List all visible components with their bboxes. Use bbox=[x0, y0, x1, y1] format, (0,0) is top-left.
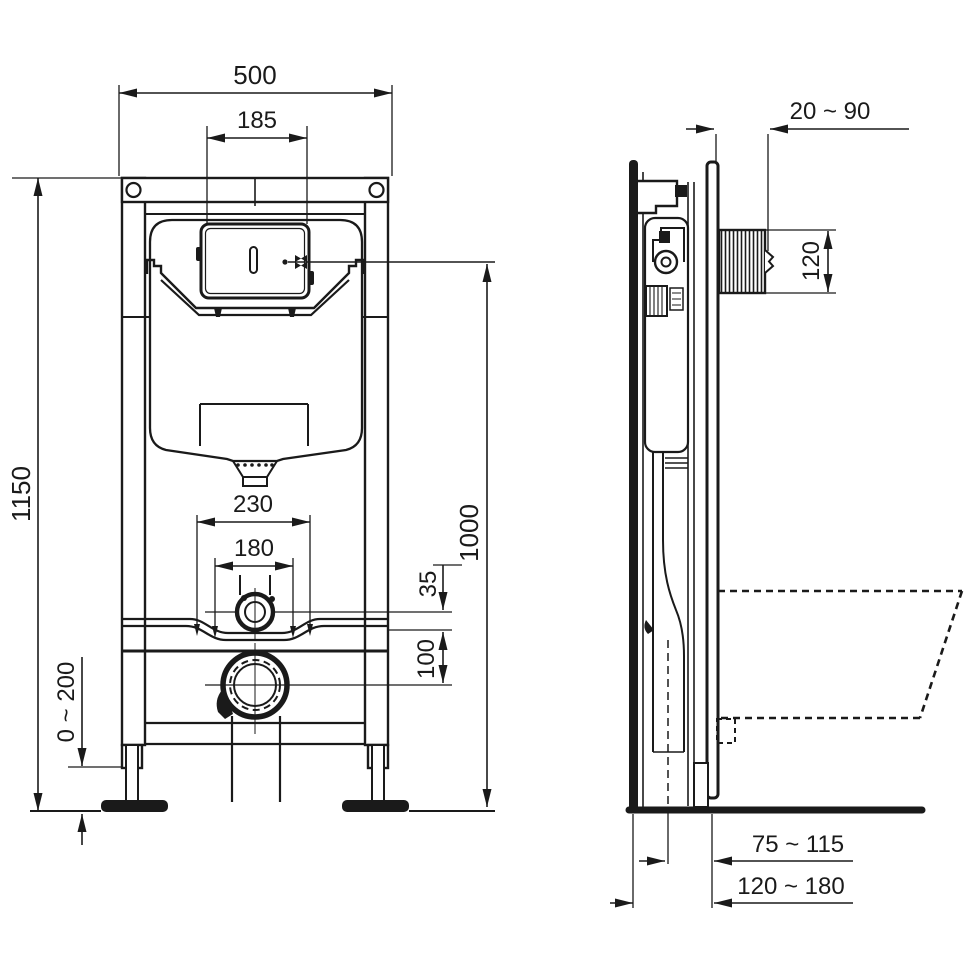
dim-label-120: 120 bbox=[798, 241, 825, 281]
dim-label-230: 230 bbox=[233, 491, 273, 518]
flush-plate-sleeve bbox=[719, 230, 773, 293]
dim-panel-height: 1000 bbox=[454, 264, 487, 807]
dim-recess-height: 120 bbox=[765, 230, 836, 293]
side-bracket-block bbox=[675, 185, 687, 197]
cistern-outlet-ribs bbox=[236, 463, 274, 467]
bowl-fixing-box bbox=[717, 719, 735, 743]
side-back-rail bbox=[629, 160, 638, 812]
flush-bend-assembly bbox=[123, 575, 452, 640]
dim-outlet-to-front: 75 ~ 115 bbox=[639, 831, 853, 861]
dim-label-100: 100 bbox=[413, 639, 440, 679]
dim-depth-range: 120 ~ 180 bbox=[610, 873, 853, 903]
dim-flush-plate-width: 185 bbox=[207, 107, 307, 224]
flush-box-right-tab bbox=[308, 271, 314, 285]
flush-bend-ear-right bbox=[269, 596, 275, 602]
dim-label-35: 35 bbox=[415, 571, 442, 598]
right-leg-tube bbox=[372, 745, 384, 802]
bowl-dashed-outline bbox=[718, 591, 962, 718]
dim-flush-offset: 35 bbox=[415, 565, 462, 610]
technical-drawing-canvas: 500 185 1150 0 ~ 200 230 bbox=[0, 0, 970, 970]
installation-frame-drawing: 500 185 1150 0 ~ 200 230 bbox=[0, 0, 970, 970]
dim-label-1000: 1000 bbox=[454, 504, 484, 562]
side-pipes bbox=[644, 452, 684, 864]
right-foot-plate bbox=[342, 800, 409, 812]
dim-label-75-115: 75 ~ 115 bbox=[752, 831, 844, 858]
flush-bend-ear-left bbox=[241, 595, 247, 601]
side-cistern bbox=[645, 218, 688, 468]
valve-leader-dot bbox=[282, 259, 287, 264]
side-outlet-ribs bbox=[665, 458, 688, 468]
dim-pipe-centers: 100 bbox=[413, 632, 443, 683]
side-wall-bracket bbox=[638, 181, 677, 213]
frame-right-upright bbox=[365, 178, 388, 745]
frame-left-upright bbox=[122, 178, 145, 745]
flush-box-left-tab bbox=[196, 247, 202, 261]
left-leg-tube bbox=[126, 745, 138, 802]
wc-bowl-outline bbox=[717, 591, 962, 743]
side-cistern-body bbox=[645, 218, 688, 452]
dim-foot-adjustment: 0 ~ 200 bbox=[53, 657, 122, 845]
dim-label-20-90: 20 ~ 90 bbox=[790, 98, 871, 125]
dim-label-1150: 1150 bbox=[6, 466, 36, 522]
cistern-funnel bbox=[233, 461, 277, 477]
cistern-funnel-stem bbox=[243, 477, 267, 486]
dim-label-185: 185 bbox=[237, 107, 277, 134]
side-front-profile bbox=[707, 162, 718, 798]
dim-label-120-180: 120 ~ 180 bbox=[737, 873, 844, 900]
sleeve-tip bbox=[765, 250, 773, 273]
sleeve-block bbox=[719, 230, 765, 293]
side-drain-inner bbox=[663, 540, 684, 752]
flush-box-outer bbox=[201, 224, 309, 298]
left-foot-plate bbox=[101, 800, 168, 812]
side-view bbox=[629, 160, 962, 864]
dim-label-0-200: 0 ~ 200 bbox=[53, 662, 80, 743]
dim-label-180: 180 bbox=[234, 535, 274, 562]
dim-label-500: 500 bbox=[233, 60, 276, 90]
side-bottom-bracket bbox=[694, 763, 708, 807]
